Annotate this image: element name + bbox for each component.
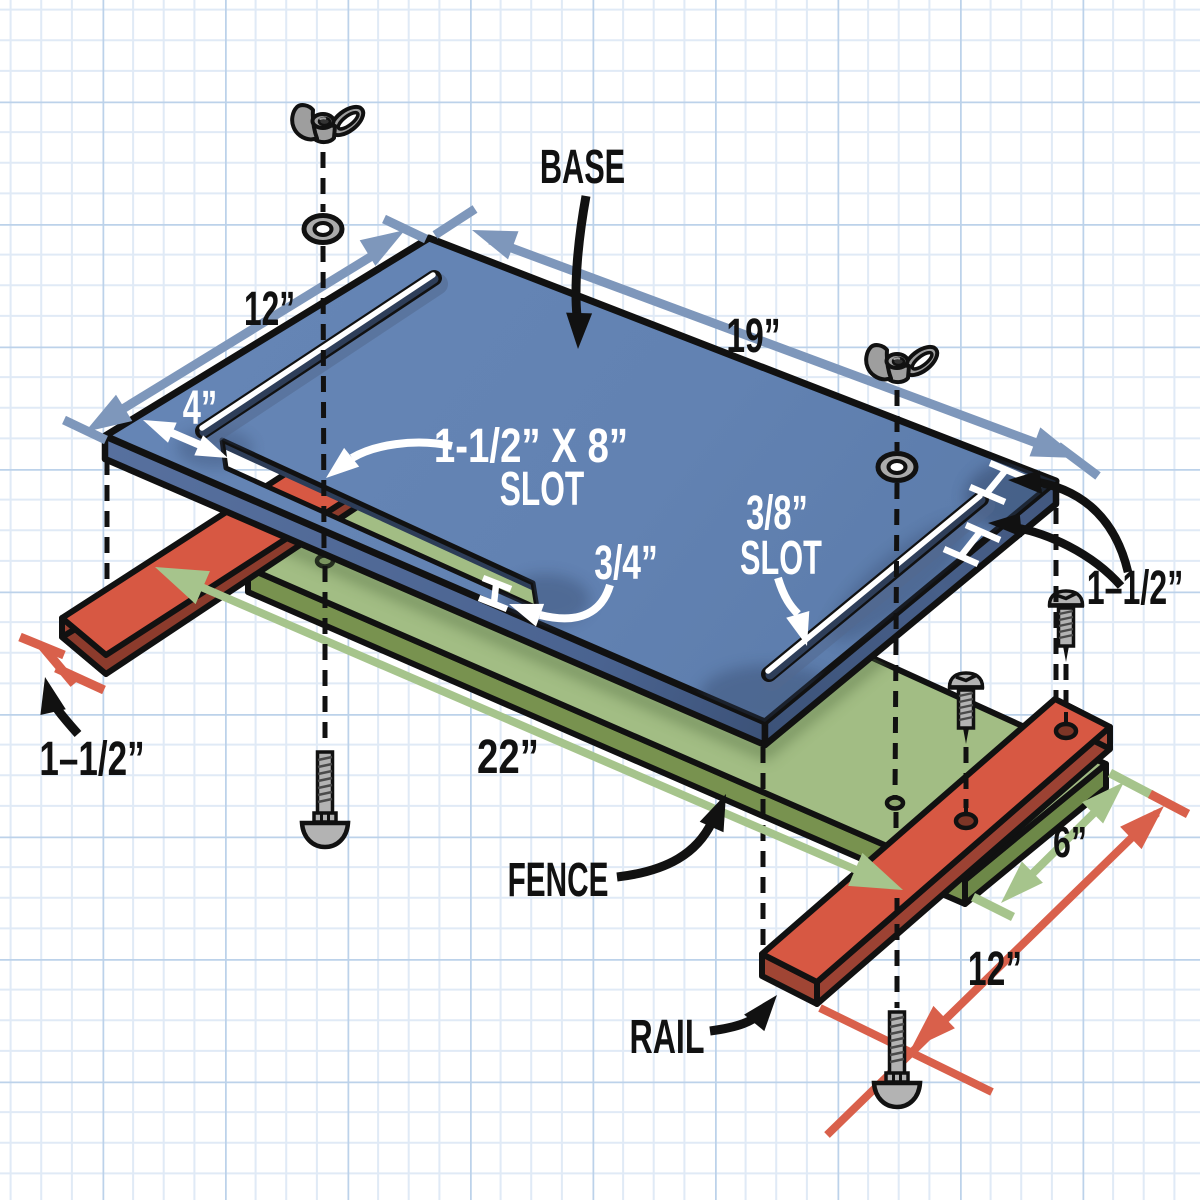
svg-text:FENCE: FENCE — [508, 854, 609, 907]
svg-text:4”: 4” — [183, 381, 217, 435]
svg-text:22”: 22” — [477, 731, 539, 784]
svg-text:12”: 12” — [244, 281, 295, 335]
svg-text:SLOT: SLOT — [740, 531, 822, 585]
svg-text:1–1/2”: 1–1/2” — [1087, 561, 1184, 615]
svg-text:19”: 19” — [726, 308, 780, 362]
svg-text:SLOT: SLOT — [500, 461, 585, 515]
svg-text:3/4”: 3/4” — [594, 535, 657, 589]
svg-text:12”: 12” — [968, 941, 1022, 995]
svg-text:BASE: BASE — [540, 140, 625, 194]
svg-text:6”: 6” — [1053, 818, 1087, 867]
svg-text:1–1/2”: 1–1/2” — [39, 732, 144, 786]
svg-text:RAIL: RAIL — [629, 1010, 704, 1064]
